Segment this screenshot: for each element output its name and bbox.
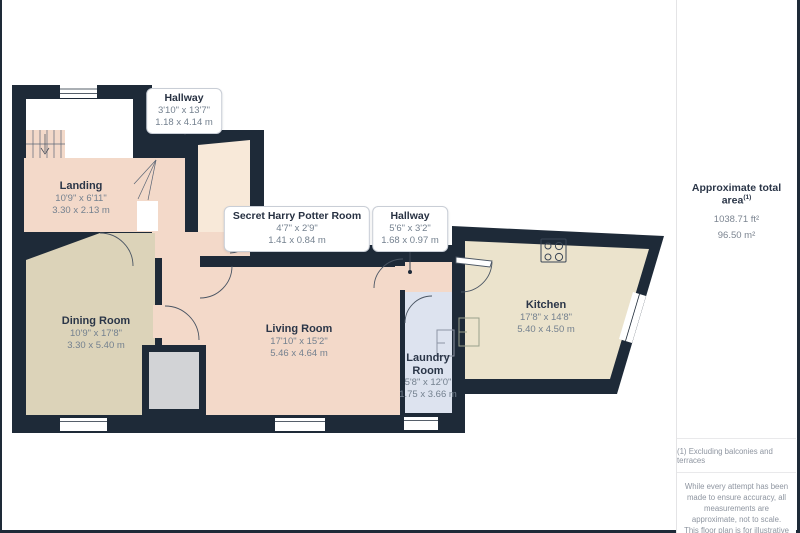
callout-hallway-mid: Hallway 5'6" x 3'2" 1.68 x 0.97 m	[372, 206, 448, 252]
window-top	[60, 85, 97, 98]
callout-name: Secret Harry Potter Room	[233, 210, 361, 223]
callout-dims-metric: 1.41 x 0.84 m	[233, 235, 361, 247]
total-area-label: Approximate total area	[692, 182, 781, 207]
callout-dims-imperial: 5'6" x 3'2"	[381, 223, 439, 235]
disclaimer-text: While every attempt has been made to ens…	[684, 482, 789, 533]
window-laundry	[404, 417, 438, 430]
living-room-top-wall	[200, 256, 405, 267]
total-area-m: 96.50 m²	[677, 230, 796, 241]
dining-living-doorway	[153, 305, 163, 338]
callout-hallway-top: Hallway 3'10" x 13'7" 1.18 x 4.14 m	[146, 88, 222, 134]
frame-border-left	[0, 0, 2, 533]
landing-floor	[24, 158, 152, 232]
window-dining	[60, 418, 107, 431]
dining-room-floor	[26, 233, 155, 415]
footnote-marker: (1)	[743, 194, 751, 201]
total-area-ft: 1038.71 ft²	[677, 214, 796, 225]
mid-hallway-floor	[405, 262, 452, 292]
footnote-text: (1) Excluding balconies and terraces	[677, 447, 796, 465]
info-sidebar: Approximate total area(1) 1038.71 ft² 96…	[676, 0, 796, 533]
window-living	[275, 418, 325, 431]
footnote-box: (1) Excluding balconies and terraces	[677, 438, 796, 472]
legal-box: While every attempt has been made to ens…	[677, 472, 796, 533]
laundry-room-floor	[405, 292, 452, 413]
callout-secret-room: Secret Harry Potter Room 4'7" x 2'9" 1.4…	[224, 206, 370, 252]
total-area-block: Approximate total area(1) 1038.71 ft² 96…	[677, 182, 796, 241]
callout-dims-imperial: 3'10" x 13'7"	[155, 105, 213, 117]
total-area-title: Approximate total area(1)	[677, 182, 796, 207]
staircase-icon	[26, 130, 65, 158]
callout-name: Hallway	[155, 92, 213, 105]
floorplan-drawing	[0, 0, 676, 533]
callout-name: Hallway	[381, 210, 439, 223]
closet-floor	[149, 352, 199, 409]
callout-dims-imperial: 4'7" x 2'9"	[233, 223, 361, 235]
callout-dims-metric: 1.68 x 0.97 m	[381, 235, 439, 247]
callout-dims-metric: 1.18 x 4.14 m	[155, 117, 213, 129]
floorplan-page: Landing 10'9" x 6'11" 3.30 x 2.13 m Dini…	[0, 0, 800, 533]
